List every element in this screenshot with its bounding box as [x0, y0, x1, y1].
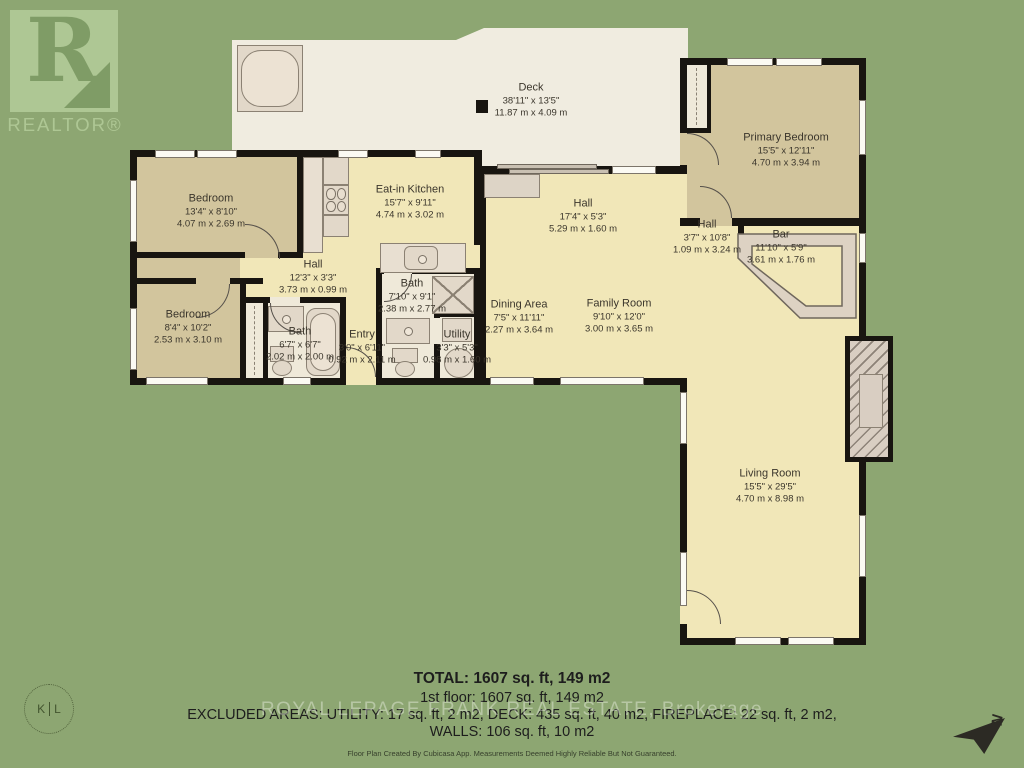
window	[560, 377, 644, 385]
kitchen-sink-icon	[404, 246, 438, 270]
window	[155, 150, 195, 158]
window	[612, 166, 656, 174]
kitchen-cabinet	[323, 215, 349, 237]
window	[859, 100, 866, 155]
window	[130, 180, 137, 242]
window	[859, 233, 866, 263]
window	[859, 515, 866, 577]
window	[130, 308, 137, 370]
door-gap	[346, 377, 376, 385]
summary-total: TOTAL: 1607 sq. ft, 149 m2	[0, 670, 1024, 688]
room-label-kitchen: Eat-in Kitchen15'7" x 9'11"4.74 m x 3.02…	[376, 183, 444, 221]
window	[680, 392, 687, 444]
room-label-hall-small: Hall12'3" x 3'3"3.73 m x 0.99 m	[279, 258, 347, 296]
wall	[474, 268, 480, 385]
room-label-hall-main: Hall17'4" x 5'3"5.29 m x 1.60 m	[549, 197, 617, 235]
realtor-wordmark: REALTOR®	[0, 114, 130, 136]
summary-excluded: EXCLUDED AREAS: UTILITY: 17 sq. ft, 2 m2…	[0, 707, 1024, 723]
realtor-logo-box: R	[10, 10, 118, 112]
wall	[240, 278, 246, 385]
room-label-hall-right: Hall3'7" x 10'8"1.09 m x 3.24 m	[673, 218, 741, 256]
fireplace	[845, 336, 893, 462]
closet-floor	[246, 303, 263, 378]
window	[415, 150, 441, 158]
window	[788, 637, 834, 645]
room-label-deck: Deck38'11" x 13'5"11.87 m x 4.09 m	[495, 81, 568, 119]
room-label-bedroom1: Bedroom13'4" x 8'10"4.07 m x 2.69 m	[177, 192, 245, 230]
window	[197, 150, 237, 158]
wall	[474, 150, 480, 245]
window	[283, 377, 311, 385]
wall	[707, 65, 711, 133]
toilet-bowl-icon	[395, 361, 415, 377]
area-summary: TOTAL: 1607 sq. ft, 149 m2 1st floor: 16…	[0, 670, 1024, 758]
room-label-utility: Utility3'3" x 5'3"0.98 m x 1.60 m	[423, 328, 491, 366]
summary-walls: WALLS: 106 sq. ft, 10 m2	[0, 724, 1024, 740]
room-label-bath2: Bath7'10" x 9'1"2.38 m x 2.77 m	[378, 277, 446, 315]
vestibule-floor	[137, 258, 240, 278]
window	[776, 58, 822, 66]
window	[727, 58, 773, 66]
sliding-door	[509, 169, 609, 174]
room-label-living: Living Room15'5" x 29'5"4.70 m x 8.98 m	[736, 467, 804, 505]
fridge-icon	[323, 157, 349, 185]
window	[490, 377, 534, 385]
deck-post	[476, 100, 488, 113]
room-label-dining: Dining Area7'5" x 11'11"2.27 m x 3.64 m	[485, 298, 553, 336]
room-label-entry: Entry3'0" x 6'11"0.92 m x 2.11 m	[328, 328, 395, 366]
room-label-family: Family Room9'10" x 12'0"3.00 m x 3.65 m	[585, 297, 653, 335]
kitchen-counter	[303, 157, 323, 253]
window	[146, 377, 208, 385]
primary-closet-floor	[687, 65, 707, 128]
room-label-bar: Bar11'10" x 5'9"3.61 m x 1.76 m	[747, 228, 815, 266]
opening	[474, 245, 480, 268]
hot-tub	[237, 45, 303, 112]
credit-line: Floor Plan Created By Cubicasa App. Meas…	[0, 749, 1024, 758]
window	[338, 150, 368, 158]
room-label-bedroom2: Bedroom8'4" x 10'2"2.53 m x 3.10 m	[154, 308, 222, 346]
stove-icon	[323, 185, 349, 215]
window	[735, 637, 781, 645]
summary-first-floor: 1st floor: 1607 sq. ft, 149 m2	[0, 690, 1024, 706]
window	[680, 552, 687, 606]
room-label-bath1: Bath6'7" x 6'7"2.02 m x 2.00 m	[266, 325, 334, 363]
room-label-primary-bedroom: Primary Bedroom15'5" x 12'11"4.70 m x 3.…	[743, 131, 829, 169]
door-landing	[484, 174, 540, 198]
floor-plan-page: Deck38'11" x 13'5"11.87 m x 4.09 m Bedro…	[0, 0, 1024, 768]
